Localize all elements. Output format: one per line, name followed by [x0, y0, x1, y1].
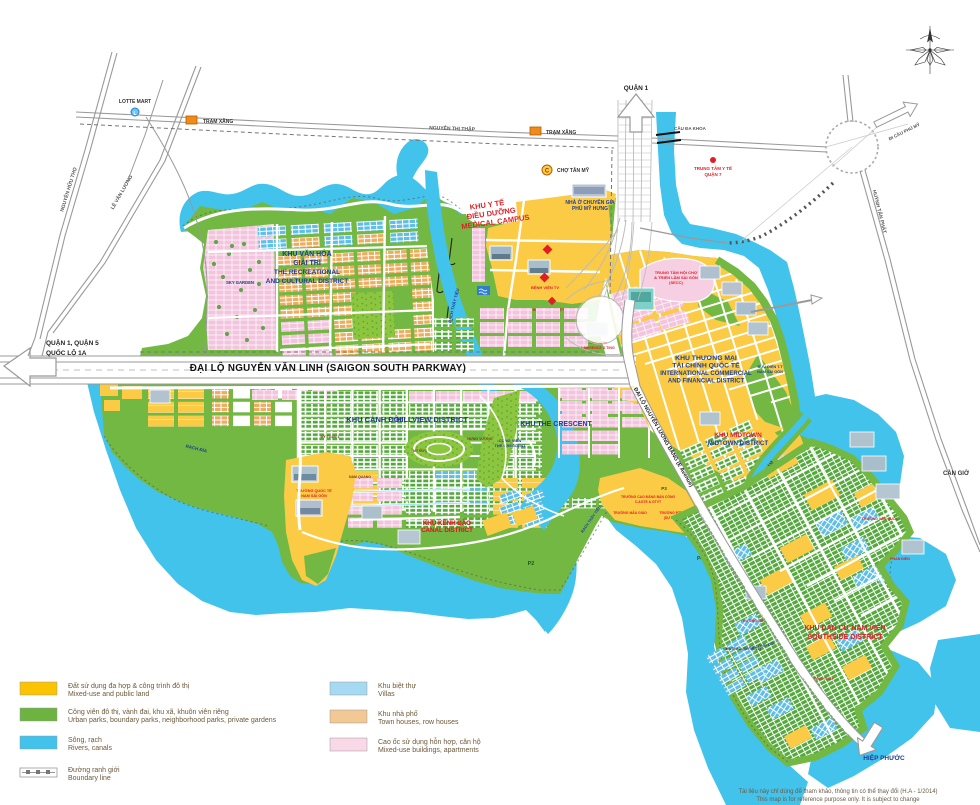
svg-text:KHU KÊNH ĐÀO: KHU KÊNH ĐÀO — [423, 519, 471, 527]
svg-text:MỸ TOÀN 1: MỸ TOÀN 1 — [321, 434, 340, 439]
svg-text:TRUNG TÂM Y TẾ: TRUNG TÂM Y TẾ — [694, 165, 732, 171]
svg-text:TRẠM XĂNG: TRẠM XĂNG — [203, 118, 233, 125]
svg-text:PHÚ MỸ HƯNG: PHÚ MỸ HƯNG — [572, 205, 608, 212]
svg-text:MỸ ĐỨC: MỸ ĐỨC — [413, 448, 428, 453]
svg-text:KHU DÂN CƯ NAM VIÊN: KHU DÂN CƯ NAM VIÊN — [804, 623, 885, 632]
svg-text:Cao ốc sử dụng hỗn hợp, căn hộ: Cao ốc sử dụng hỗn hợp, căn hộ — [378, 737, 481, 746]
svg-text:KHU THE CRESCENT: KHU THE CRESCENT — [520, 421, 592, 428]
svg-text:KHU THƯƠNG MẠI: KHU THƯƠNG MẠI — [675, 355, 737, 362]
svg-text:TRƯỜNG QUỐC TẾ: TRƯỜNG QUỐC TẾ — [296, 488, 332, 493]
svg-text:(SECC): (SECC) — [669, 280, 683, 285]
svg-text:LOTTE MART: LOTTE MART — [119, 99, 151, 105]
svg-text:Đường ranh giới: Đường ranh giới — [68, 767, 120, 774]
svg-text:Khu biệt thự: Khu biệt thự — [378, 683, 416, 690]
svg-text:NAM QUANG: NAM QUANG — [349, 475, 371, 479]
svg-text:NAM SÀI GÒN: NAM SÀI GÒN — [301, 493, 327, 498]
svg-text:HƯNG VƯỢNG: HƯNG VƯỢNG — [467, 437, 492, 441]
svg-text:Công viên đô thị, vành đai, kh: Công viên đô thị, vành đai, khu xã, khuô… — [68, 709, 229, 716]
svg-text:CẦN GIỜ: CẦN GIỜ — [943, 469, 970, 477]
svg-text:THE CRESCENT: THE CRESCENT — [494, 443, 526, 448]
svg-text:QUẬN 1, QUẬN 5: QUẬN 1, QUẬN 5 — [46, 338, 99, 347]
svg-text:BỆNH VIỆN TV: BỆNH VIỆN TV — [531, 285, 559, 290]
svg-text:Urban parks, boundary parks, n: Urban parks, boundary parks, neighborhoo… — [68, 717, 277, 724]
svg-text:P2: P2 — [528, 561, 535, 567]
svg-text:LAWRENCE S TING: LAWRENCE S TING — [581, 346, 615, 350]
svg-text:KHU MIDTOWN: KHU MIDTOWN — [714, 432, 762, 439]
svg-text:PHAN ĐIỀN: PHAN ĐIỀN — [890, 556, 910, 561]
svg-text:GIẢI TRÍ: GIẢI TRÍ — [293, 258, 322, 267]
svg-text:NHÀ Ở CHUYÊN GIA: NHÀ Ở CHUYÊN GIA — [565, 198, 615, 206]
svg-text:KHU CẢNH ĐỒI: KHU CẢNH ĐỒI — [346, 414, 401, 424]
svg-text:P3: P3 — [661, 486, 667, 491]
svg-text:SKY GARDEN: SKY GARDEN — [226, 280, 254, 285]
svg-text:TRẠM XĂNG: TRẠM XĂNG — [546, 129, 576, 136]
svg-text:Khu nhà phố: Khu nhà phố — [378, 709, 418, 718]
svg-text:Villas: Villas — [378, 691, 395, 698]
svg-text:QUẬN 7: QUẬN 7 — [704, 171, 721, 177]
svg-text:AND FINANCIAL DISTRICT: AND FINANCIAL DISTRICT — [668, 379, 745, 385]
svg-text:Sông, rạch: Sông, rạch — [68, 737, 102, 744]
svg-text:CANAL DISTRICT: CANAL DISTRICT — [421, 527, 473, 534]
svg-text:CẦU ĐA KHOA: CẦU ĐA KHOA — [674, 125, 707, 131]
svg-text:C.&GTE & GTVT: C.&GTE & GTVT — [635, 500, 662, 504]
svg-text:This map is for reference purp: This map is for reference purpose only. … — [756, 797, 920, 803]
svg-text:ĐẠI LỘ NGUYỄN VĂN LINH (SAIGON: ĐẠI LỘ NGUYỄN VĂN LINH (SAIGON SOUTH PAR… — [190, 362, 466, 374]
svg-text:Tài liệu này chỉ dùng để tham: Tài liệu này chỉ dùng để tham khảo, thôn… — [738, 788, 937, 795]
svg-text:Town houses, row houses: Town houses, row houses — [378, 719, 459, 726]
svg-text:INTERNATIONAL COMMERCIAL: INTERNATIONAL COMMERCIAL — [660, 371, 752, 377]
svg-text:BƯU ĐIỆN T.T: BƯU ĐIỆN T.T — [757, 364, 783, 369]
svg-text:KHU VĂN HÓA: KHU VĂN HÓA — [282, 249, 331, 258]
svg-text:THE RECREATIONAL: THE RECREATIONAL — [274, 269, 340, 276]
svg-text:Mixed-use buildings, apartment: Mixed-use buildings, apartments — [378, 747, 479, 754]
svg-text:Đất sử dụng đa hợp & công trìn: Đất sử dụng đa hợp & công trình đô thị — [68, 681, 190, 690]
svg-text:NAM SÀI GÒN: NAM SÀI GÒN — [757, 369, 783, 374]
svg-text:HILLVIEW DISTRICT: HILLVIEW DISTRICT — [396, 415, 468, 424]
svg-text:QUẬN 1: QUẬN 1 — [624, 83, 649, 92]
svg-text:TRƯỜNG VĂN QUỐC: TRƯỜNG VĂN QUỐC — [862, 516, 899, 521]
svg-text:TRƯỜNG CAO ĐẲNG BÁN CÔNG: TRƯỜNG CAO ĐẲNG BÁN CÔNG — [621, 494, 675, 499]
svg-text:L: L — [133, 111, 136, 117]
svg-text:Rivers, canals: Rivers, canals — [68, 745, 112, 752]
svg-text:Mixed-use and public land: Mixed-use and public land — [68, 691, 149, 698]
svg-text:MIDTOWN DISTRICT: MIDTOWN DISTRICT — [708, 440, 769, 447]
svg-text:SOUTHSIDE DISTRICT: SOUTHSIDE DISTRICT — [807, 634, 883, 641]
svg-text:HIỆP PHƯỚC: HIỆP PHƯỚC — [863, 753, 905, 762]
svg-text:TRƯỜNG MẪU GIÁO: TRƯỜNG MẪU GIÁO — [613, 510, 647, 515]
svg-text:AND CULTURAL DISTRICT: AND CULTURAL DISTRICT — [266, 278, 348, 285]
svg-text:C: C — [545, 169, 550, 175]
svg-text:Boundary line: Boundary line — [68, 775, 111, 782]
svg-text:CHỢ TÂN MỸ: CHỢ TÂN MỸ — [557, 167, 590, 174]
